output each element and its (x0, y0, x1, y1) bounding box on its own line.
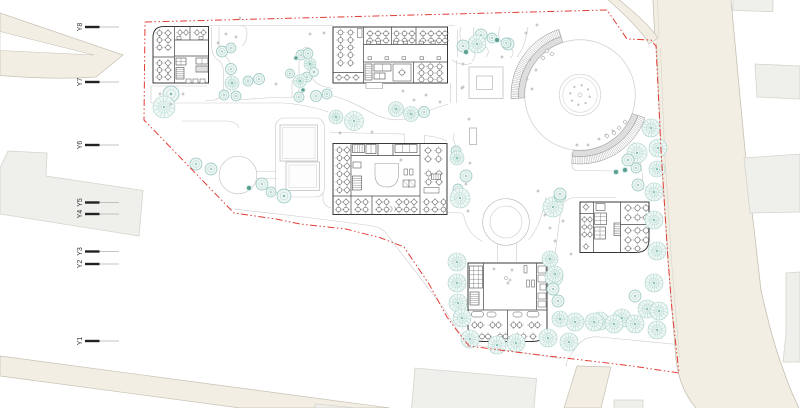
svg-text:Y1: Y1 (77, 337, 84, 346)
svg-text:Y7: Y7 (77, 78, 84, 87)
svg-text:Y3: Y3 (77, 247, 84, 256)
svg-text:Y6: Y6 (77, 141, 84, 150)
svg-text:Y8: Y8 (77, 23, 84, 32)
svg-text:Y2: Y2 (77, 260, 84, 269)
svg-text:Y4: Y4 (77, 210, 84, 219)
svg-text:Y5: Y5 (77, 198, 84, 207)
